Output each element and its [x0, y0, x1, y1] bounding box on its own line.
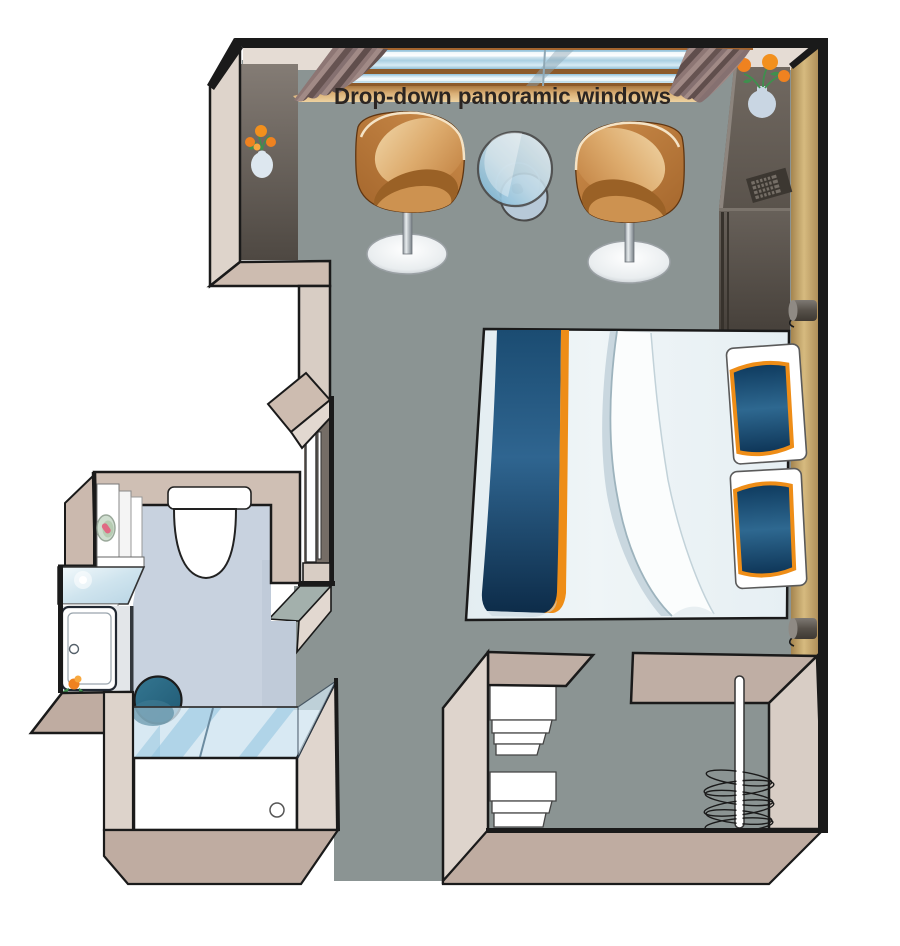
svg-text:Drop-down panoramic windows: Drop-down panoramic windows	[334, 83, 671, 109]
